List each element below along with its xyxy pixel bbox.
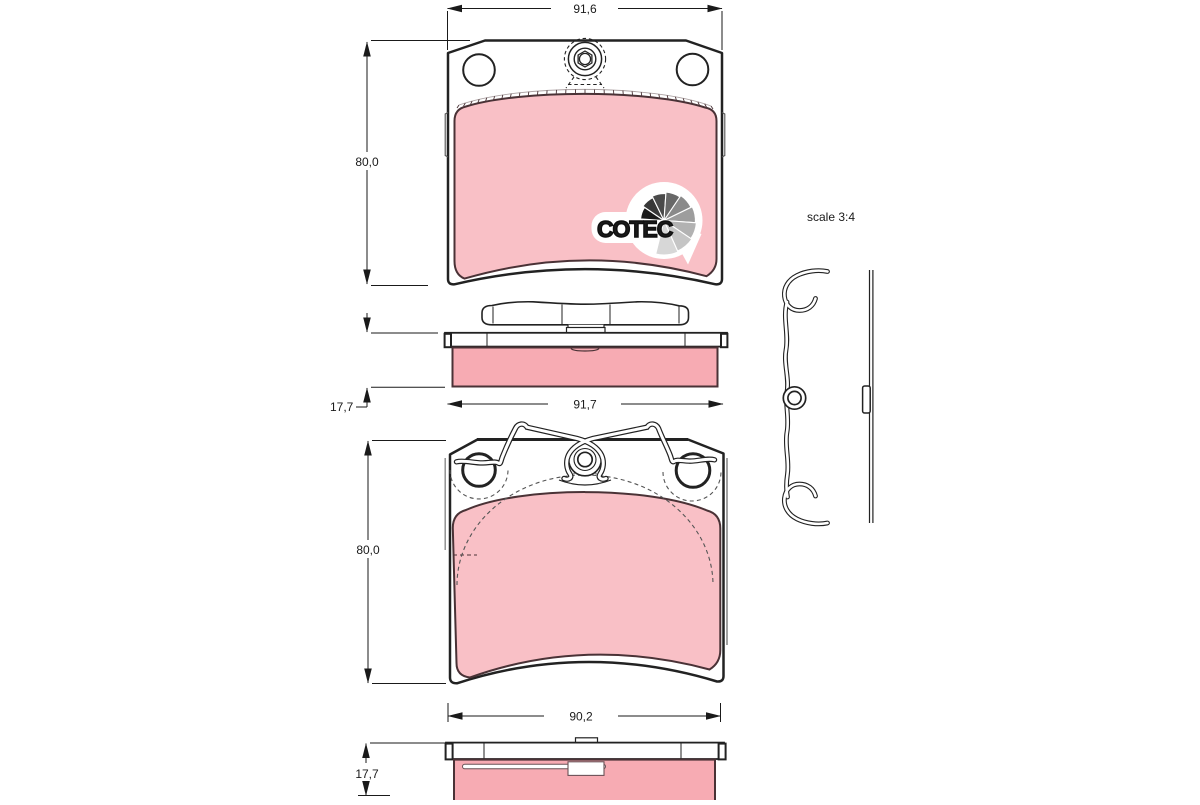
svg-text:90,2: 90,2 xyxy=(569,710,593,724)
svg-text:scale 3:4: scale 3:4 xyxy=(807,210,855,224)
svg-text:17,7: 17,7 xyxy=(355,767,379,781)
svg-text:91,6: 91,6 xyxy=(573,2,597,16)
svg-text:80,0: 80,0 xyxy=(355,155,379,169)
svg-text:80,0: 80,0 xyxy=(356,543,380,557)
svg-text:17,7: 17,7 xyxy=(330,400,354,414)
svg-text:COTEC: COTEC xyxy=(597,216,673,242)
svg-text:91,7: 91,7 xyxy=(573,398,597,412)
